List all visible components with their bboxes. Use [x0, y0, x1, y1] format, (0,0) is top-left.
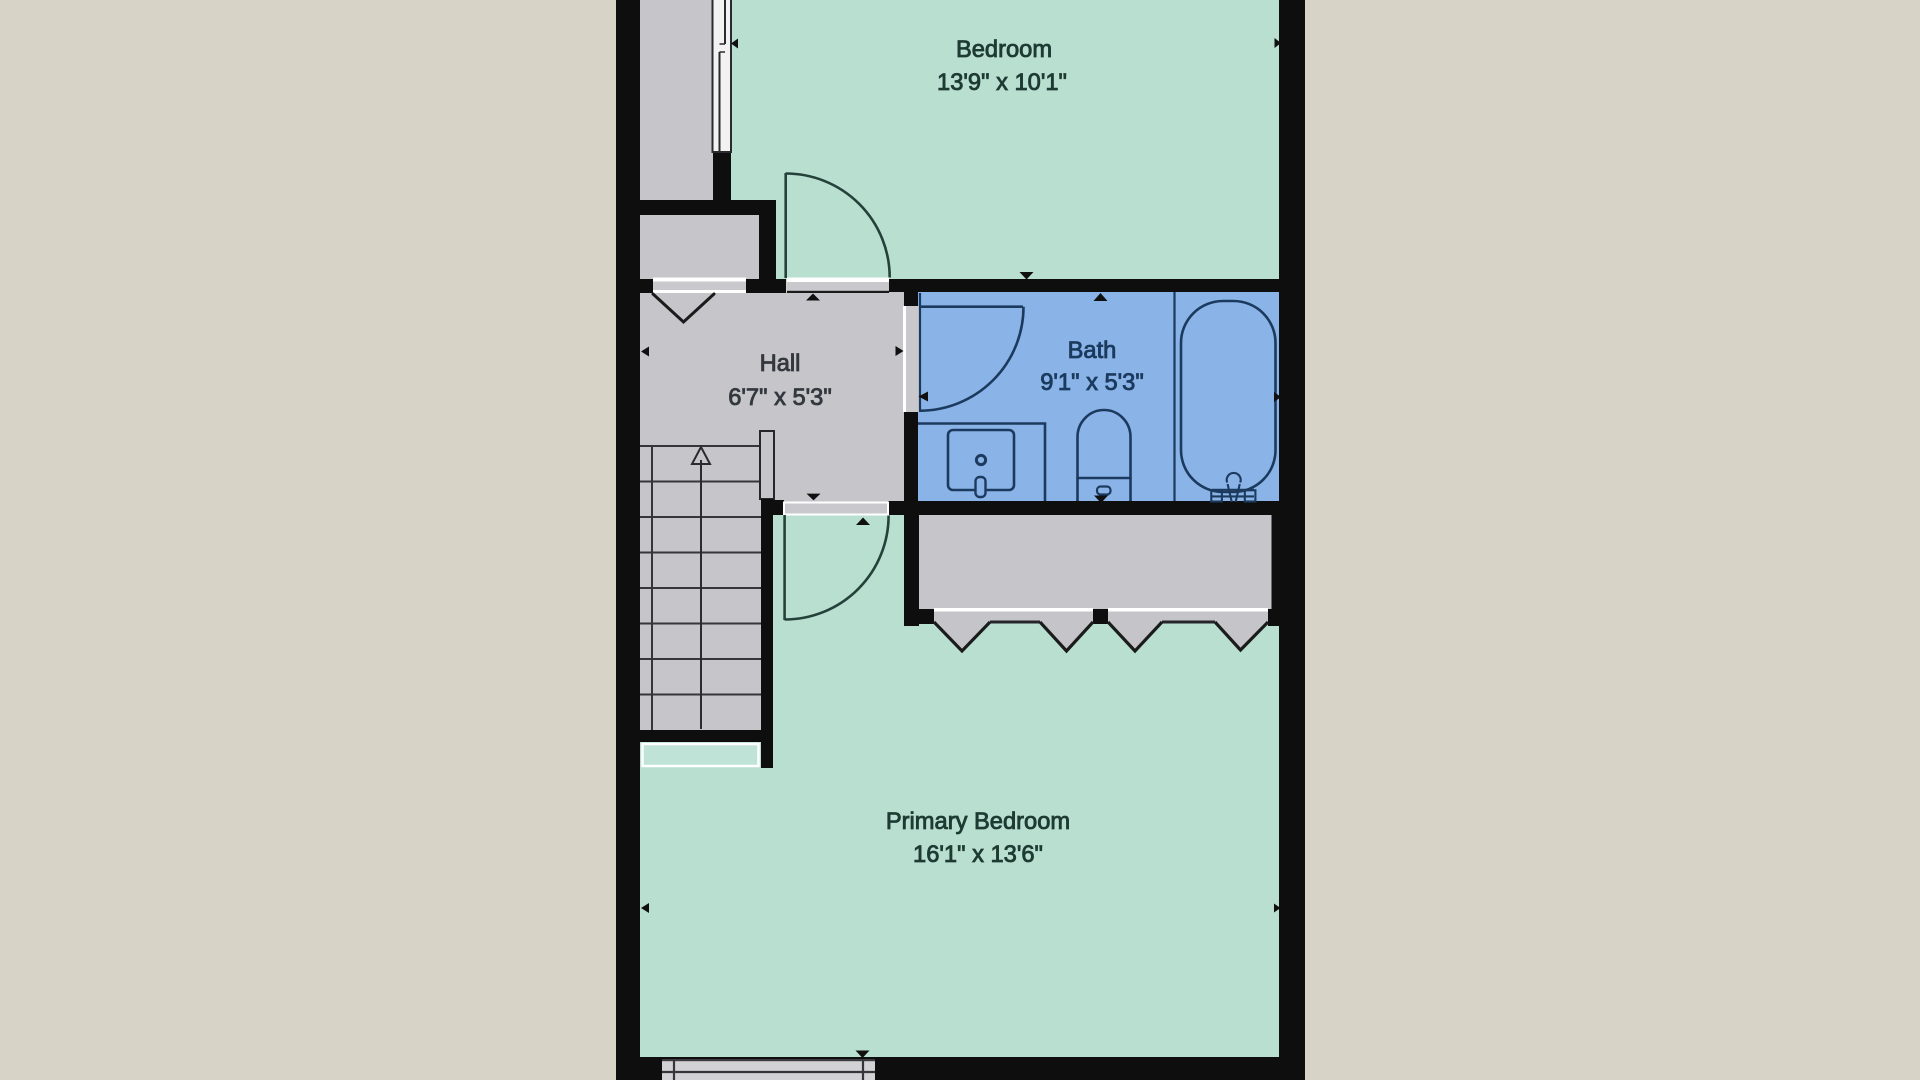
svg-text:Bedroom: Bedroom — [956, 37, 1052, 63]
svg-text:16'1" x 13'6": 16'1" x 13'6" — [913, 842, 1043, 868]
svg-text:Bath: Bath — [1068, 338, 1117, 364]
svg-text:6'7" x 5'3": 6'7" x 5'3" — [728, 385, 832, 411]
svg-text:13'9" x 10'1": 13'9" x 10'1" — [937, 70, 1067, 96]
svg-text:9'1" x 5'3": 9'1" x 5'3" — [1040, 370, 1144, 396]
svg-text:Primary Bedroom: Primary Bedroom — [886, 809, 1070, 835]
svg-text:Hall: Hall — [760, 351, 801, 377]
